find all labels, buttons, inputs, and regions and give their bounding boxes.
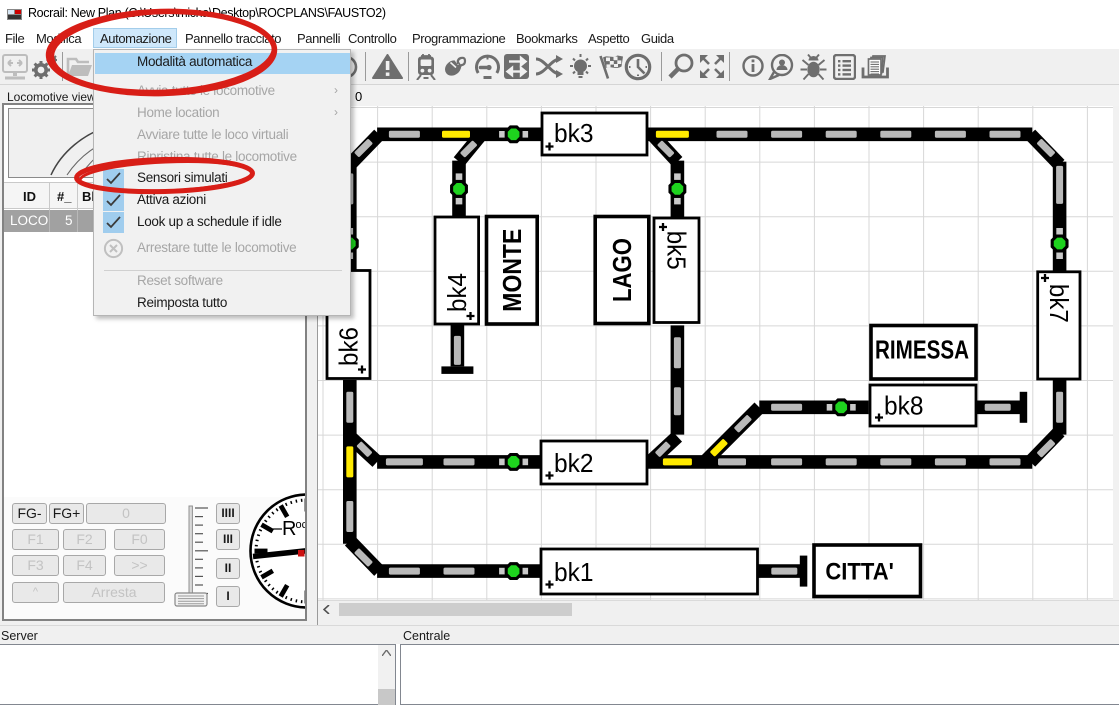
svg-text:RIMESSA: RIMESSA (875, 335, 969, 365)
svg-text:bk2: bk2 (554, 448, 594, 478)
svg-text:LAGO: LAGO (607, 238, 637, 302)
svg-text:R: R (282, 518, 296, 540)
svg-text:bk6: bk6 (334, 327, 364, 366)
svg-text:MONTE: MONTE (497, 229, 527, 312)
svg-text:CITTA': CITTA' (825, 559, 894, 586)
svg-text:bk1: bk1 (554, 557, 594, 587)
svg-text:bk7: bk7 (1044, 284, 1074, 323)
svg-text:bk8: bk8 (884, 391, 924, 421)
svg-text:bk5: bk5 (662, 231, 692, 270)
svg-text:bk3: bk3 (554, 118, 594, 148)
svg-text:bk4: bk4 (442, 273, 472, 312)
svg-text:oc: oc (296, 519, 308, 531)
